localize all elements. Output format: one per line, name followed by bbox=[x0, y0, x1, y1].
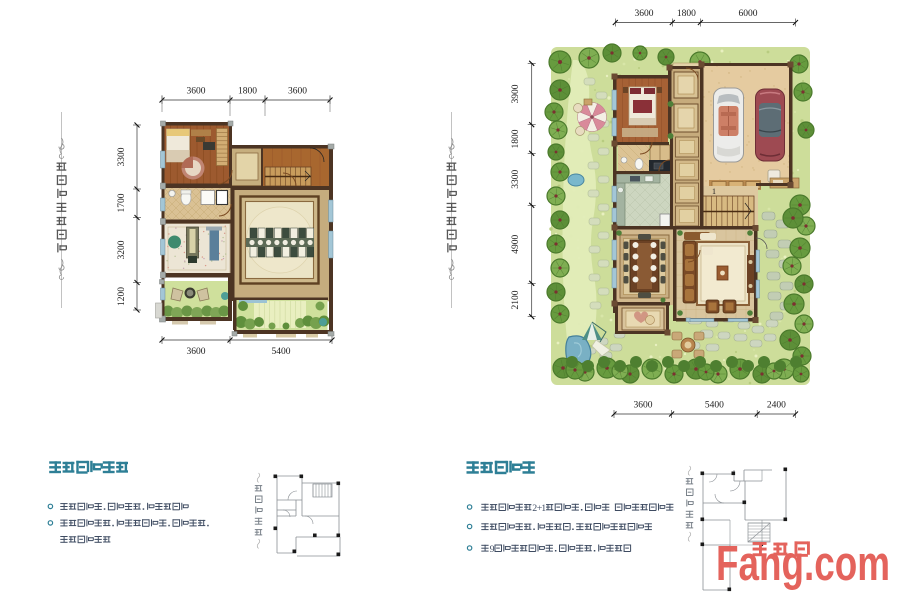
svg-text:3600: 3600 bbox=[288, 87, 307, 97]
svg-text:9: 9 bbox=[490, 544, 495, 555]
svg-text:3600: 3600 bbox=[634, 401, 653, 411]
svg-text:3300: 3300 bbox=[511, 170, 521, 189]
svg-text:3600: 3600 bbox=[187, 347, 206, 357]
svg-text:1800: 1800 bbox=[677, 9, 696, 19]
svg-text:1: 1 bbox=[712, 187, 716, 196]
svg-text:1800: 1800 bbox=[511, 129, 521, 148]
svg-text:5400: 5400 bbox=[705, 401, 724, 411]
svg-text:Fang.com: Fang.com bbox=[716, 537, 890, 591]
svg-text:3200: 3200 bbox=[117, 240, 127, 259]
svg-text:2400: 2400 bbox=[767, 401, 786, 411]
svg-text:6000: 6000 bbox=[739, 9, 758, 19]
svg-text:1800: 1800 bbox=[238, 87, 257, 97]
svg-text:2100: 2100 bbox=[511, 290, 521, 309]
svg-text:3900: 3900 bbox=[511, 84, 521, 103]
svg-text:5400: 5400 bbox=[272, 347, 291, 357]
svg-text:4900: 4900 bbox=[511, 235, 521, 254]
svg-text:1200: 1200 bbox=[117, 287, 127, 306]
svg-text:3600: 3600 bbox=[187, 87, 206, 97]
svg-text:3600: 3600 bbox=[635, 9, 654, 19]
svg-text:1700: 1700 bbox=[117, 193, 127, 212]
svg-text:3300: 3300 bbox=[117, 147, 127, 166]
svg-text:1: 1 bbox=[541, 503, 546, 514]
